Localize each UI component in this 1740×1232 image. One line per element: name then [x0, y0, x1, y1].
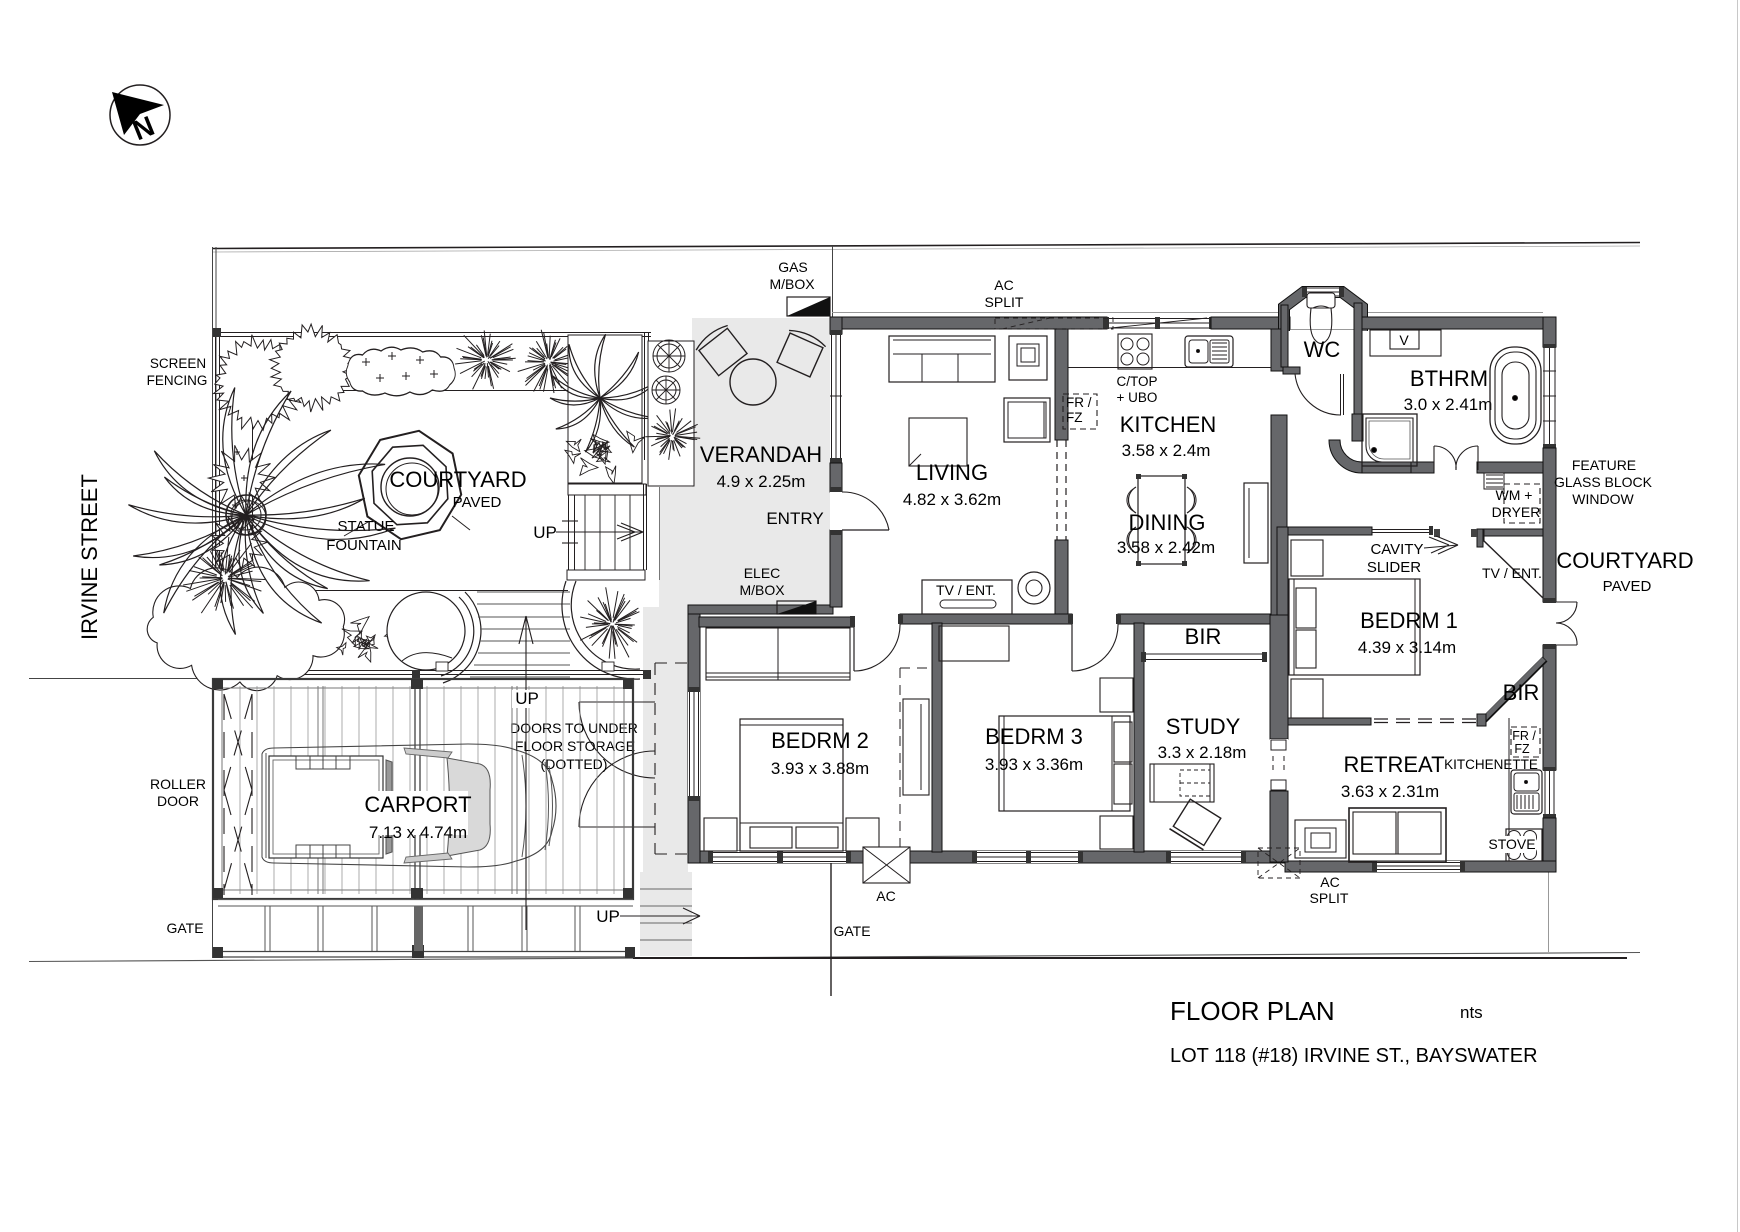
svg-text:AC: AC	[1320, 874, 1339, 890]
svg-text:M/BOX: M/BOX	[769, 276, 815, 292]
svg-text:PAVED: PAVED	[453, 494, 502, 511]
svg-text:FR /: FR /	[1066, 395, 1092, 410]
svg-text:UP: UP	[515, 689, 539, 708]
svg-text:STOVE: STOVE	[1488, 836, 1535, 852]
svg-text:CARPORT: CARPORT	[364, 792, 471, 817]
svg-text:ELEC: ELEC	[744, 565, 781, 581]
svg-text:3.3 x 2.18m: 3.3 x 2.18m	[1158, 743, 1247, 762]
svg-text:4.39 x 3.14m: 4.39 x 3.14m	[1358, 638, 1456, 657]
svg-text:FEATURE: FEATURE	[1572, 457, 1636, 473]
svg-text:FZ: FZ	[1514, 742, 1530, 756]
svg-text:4.82 x 3.62m: 4.82 x 3.62m	[903, 490, 1001, 509]
svg-text:FLOOR STORAGE: FLOOR STORAGE	[515, 738, 635, 754]
svg-text:STUDY: STUDY	[1166, 714, 1241, 739]
svg-text:LIVING: LIVING	[916, 460, 988, 485]
svg-text:C/TOP: C/TOP	[1116, 374, 1157, 389]
svg-text:IRVINE STREET: IRVINE STREET	[77, 474, 102, 640]
svg-text:FENCING: FENCING	[147, 373, 208, 388]
svg-text:DOOR: DOOR	[157, 793, 199, 809]
svg-text:BEDRM 1: BEDRM 1	[1360, 608, 1458, 633]
svg-text:PAVED: PAVED	[1603, 578, 1652, 595]
svg-text:GLASS BLOCK: GLASS BLOCK	[1554, 474, 1653, 490]
svg-text:BEDRM 3: BEDRM 3	[985, 724, 1083, 749]
svg-text:AC: AC	[994, 277, 1013, 293]
svg-text:DRYER: DRYER	[1492, 504, 1541, 520]
svg-text:TV / ENT.: TV / ENT.	[936, 582, 996, 598]
svg-text:GATE: GATE	[166, 920, 203, 936]
svg-text:STATUE: STATUE	[338, 518, 395, 535]
svg-text:3.58 x 2.4m: 3.58 x 2.4m	[1122, 441, 1211, 460]
svg-text:+ UBO: + UBO	[1117, 390, 1158, 405]
svg-text:GAS: GAS	[778, 259, 808, 275]
svg-text:SPLIT: SPLIT	[985, 294, 1024, 310]
svg-text:V: V	[1399, 332, 1409, 348]
svg-text:SLIDER: SLIDER	[1367, 559, 1421, 576]
svg-text:nts: nts	[1460, 1003, 1483, 1022]
svg-text:3.0 x 2.41m: 3.0 x 2.41m	[1404, 395, 1493, 414]
svg-text:FR /: FR /	[1512, 729, 1536, 743]
svg-text:AC: AC	[876, 888, 895, 904]
svg-text:ENTRY: ENTRY	[766, 509, 823, 528]
svg-text:4.9 x 2.25m: 4.9 x 2.25m	[717, 472, 806, 491]
svg-text:GATE: GATE	[833, 923, 870, 939]
svg-text:ROLLER: ROLLER	[150, 776, 206, 792]
svg-text:WM +: WM +	[1496, 487, 1533, 503]
svg-text:BIR: BIR	[1503, 680, 1540, 705]
svg-text:FZ: FZ	[1066, 410, 1083, 425]
svg-text:3.93 x 3.88m: 3.93 x 3.88m	[771, 759, 869, 778]
svg-text:M/BOX: M/BOX	[739, 582, 785, 598]
svg-text:SPLIT: SPLIT	[1310, 890, 1349, 906]
svg-text:WC: WC	[1304, 337, 1341, 362]
svg-text:LOT 118 (#18) IRVINE ST., BAYS: LOT 118 (#18) IRVINE ST., BAYSWATER	[1170, 1045, 1538, 1067]
svg-text:UP: UP	[533, 523, 557, 542]
svg-text:FLOOR PLAN: FLOOR PLAN	[1170, 996, 1335, 1026]
svg-text:VERANDAH: VERANDAH	[700, 442, 822, 467]
svg-text:KITCHEN: KITCHEN	[1120, 412, 1217, 437]
svg-text:7.13 x 4.74m: 7.13 x 4.74m	[369, 823, 467, 842]
svg-text:COURTYARD: COURTYARD	[1556, 548, 1693, 573]
svg-text:TV / ENT.: TV / ENT.	[1482, 565, 1542, 581]
svg-text:DINING: DINING	[1129, 510, 1206, 535]
svg-text:UP: UP	[596, 907, 620, 926]
svg-text:WINDOW: WINDOW	[1572, 491, 1634, 507]
svg-text:BIR: BIR	[1185, 624, 1222, 649]
svg-text:CAVITY: CAVITY	[1370, 541, 1423, 558]
svg-text:BEDRM 2: BEDRM 2	[771, 728, 869, 753]
svg-text:RETREAT: RETREAT	[1343, 752, 1444, 777]
svg-text:3.63 x 2.31m: 3.63 x 2.31m	[1341, 782, 1439, 801]
svg-text:BTHRM: BTHRM	[1410, 366, 1488, 391]
svg-text:3.93 x 3.36m: 3.93 x 3.36m	[985, 755, 1083, 774]
svg-text:3.58 x 2.42m: 3.58 x 2.42m	[1117, 538, 1215, 557]
svg-text:COURTYARD: COURTYARD	[389, 467, 526, 492]
svg-text:SCREEN: SCREEN	[150, 356, 206, 371]
svg-text:(DOTTED): (DOTTED)	[541, 756, 608, 772]
